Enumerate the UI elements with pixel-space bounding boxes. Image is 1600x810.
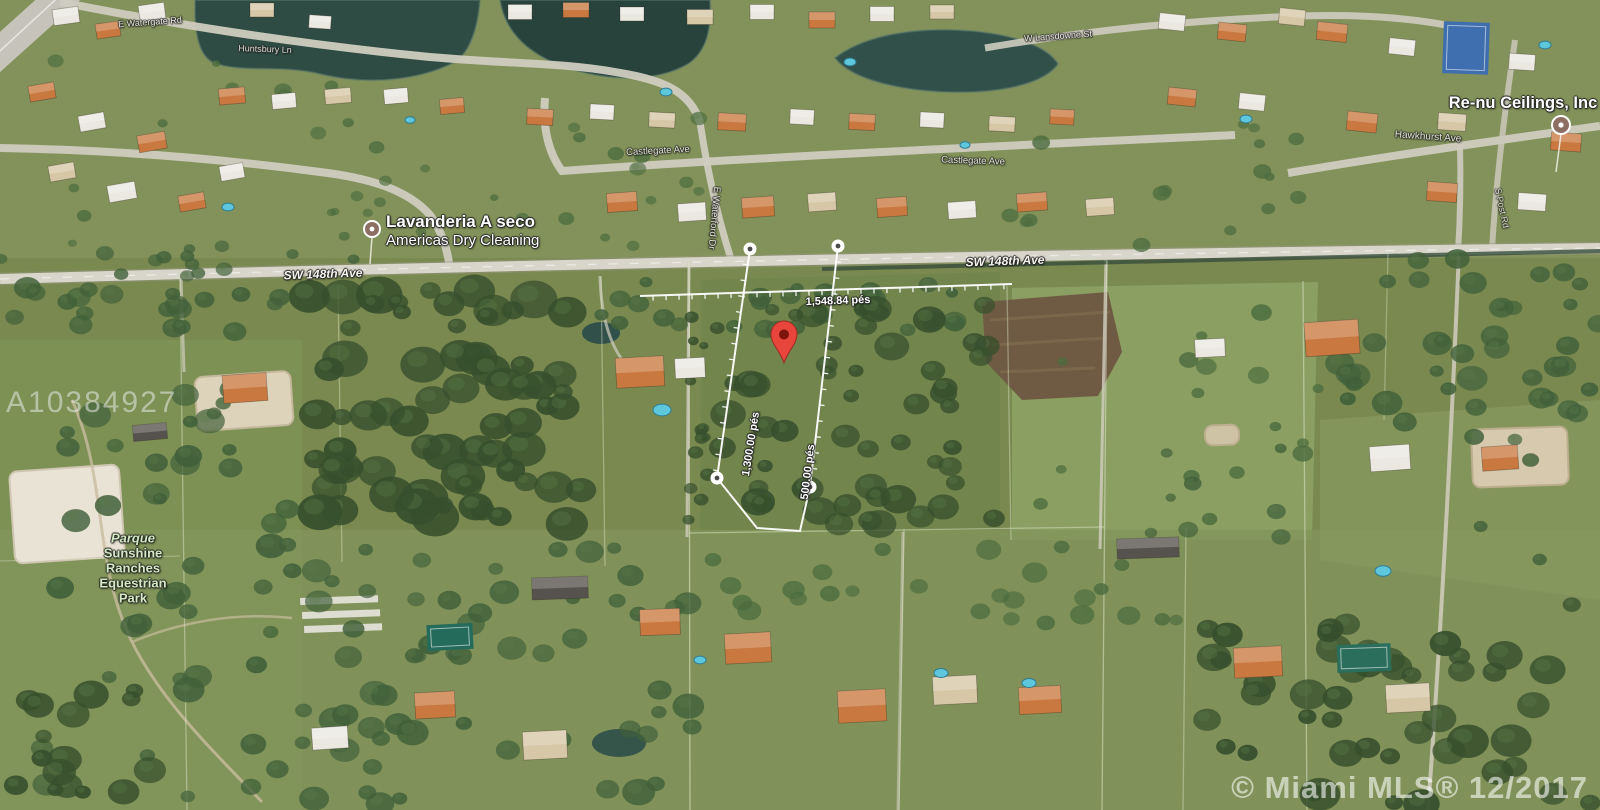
satellite-map-view: Lavanderia A seco Americas Dry Cleaning …: [0, 0, 1600, 810]
poi-label-line1[interactable]: Lavanderia A seco: [386, 212, 539, 232]
park-label-line1: Parque: [99, 531, 166, 546]
street-label-sw148-right: SW 148th Ave: [965, 253, 1044, 270]
poi-label-renu-ceilings[interactable]: Re-nu Ceilings, Inc: [1449, 93, 1598, 113]
park-label-line3: Ranches: [99, 561, 166, 576]
property-pin-icon[interactable]: [770, 320, 798, 364]
park-label: Parque Sunshine Ranches Equestrian Park: [99, 531, 166, 606]
parcel-boundary-overlay: [0, 0, 1600, 810]
mls-id-watermark: A10384927: [6, 386, 178, 420]
poi-label-lavanderia[interactable]: Lavanderia A seco Americas Dry Cleaning: [386, 212, 539, 249]
mls-attribution: © Miami MLS® 12/2017: [1231, 770, 1588, 806]
park-label-line5: Park: [99, 591, 166, 606]
street-label-sw148-left: SW 148th Ave: [283, 266, 362, 283]
street-label-castlegate-right: Castlegate Ave: [941, 154, 1005, 167]
park-label-line4: Equestrian: [99, 576, 166, 591]
street-label-huntsbury: Huntsbury Ln: [238, 43, 292, 55]
measurement-frontage: 1,548.84 pés: [805, 294, 870, 308]
ceilings-business-poi-icon[interactable]: [1550, 114, 1574, 176]
dry-cleaning-poi-icon[interactable]: [361, 218, 383, 268]
park-label-line2: Sunshine: [99, 546, 166, 561]
poi-label-line2[interactable]: Americas Dry Cleaning: [386, 232, 539, 249]
